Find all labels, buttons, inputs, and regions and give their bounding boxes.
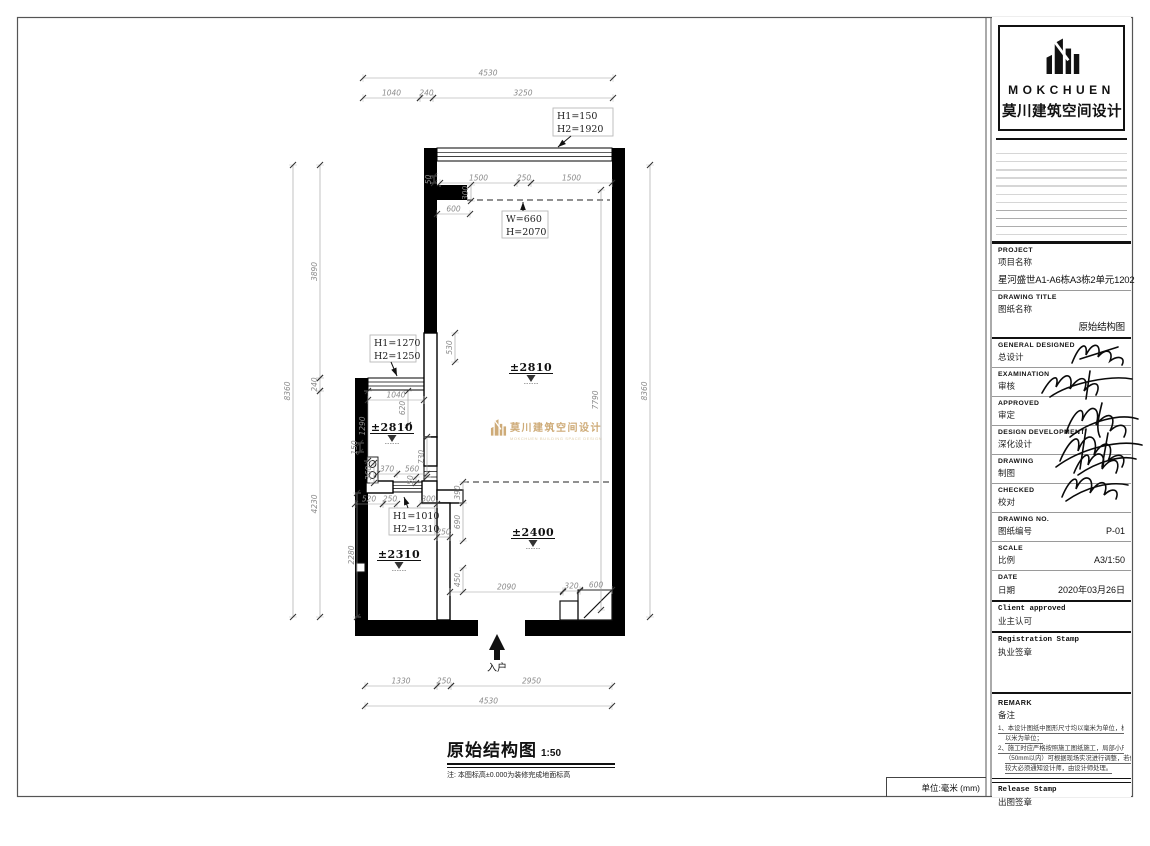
- dim-value: 3250: [513, 89, 532, 98]
- dim-value: 370: [380, 465, 395, 474]
- entry-label: 入户: [487, 661, 507, 674]
- leader-arrowhead: [391, 368, 397, 376]
- drawing-title-label-en: DRAWING TITLE: [998, 294, 1125, 301]
- floor-plan-canvas: 入户 莫川建筑空间设计 MOKCHUEN BUILDING SPACE DESI…: [0, 0, 1150, 813]
- drawing-no-value: P-01: [1106, 526, 1125, 536]
- sign-row-general-designed: GENERAL DESIGNED 总设计: [992, 339, 1131, 368]
- dim-value: 7790: [591, 390, 600, 409]
- registration-stamp-section: Registration Stamp 执业签章: [992, 633, 1131, 694]
- remark-section: REMARK 备注 1、本设计图纸中图形尺寸均以毫米为单位，标高 以米为单位； …: [992, 694, 1131, 779]
- dim-value: 390: [453, 485, 462, 500]
- opening-label-line1: W=660: [506, 214, 542, 225]
- dim-value: 8360: [640, 381, 649, 400]
- dim-value: 250: [517, 174, 532, 183]
- dim-value: 1330: [391, 677, 410, 686]
- dim-value: 1040: [382, 89, 401, 98]
- opening-label-line1: H1=150: [557, 111, 597, 122]
- opening-label-line1: H1=1270: [374, 338, 420, 349]
- elevation-value: ±2400: [512, 526, 554, 539]
- remark-note: 以米为单位；: [1005, 734, 1043, 744]
- dim-value: 560: [405, 465, 420, 474]
- dim-value: 250: [437, 677, 452, 686]
- watermark: 莫川建筑空间设计 MOKCHUEN BUILDING SPACE DESIGN: [491, 419, 602, 441]
- dim-value: 600: [446, 205, 461, 214]
- project-section: PROJECT 项目名称 星河盛世A1-A6栋A3栋2单元1202: [992, 244, 1131, 291]
- opening-label-line2: H2=1250: [374, 351, 420, 362]
- opening-label-line2: H=2070: [506, 227, 546, 238]
- divider: [996, 138, 1127, 140]
- unit-label: 单位:毫米 (mm): [886, 777, 986, 797]
- drawing-title-label-cn: 图纸名称: [998, 303, 1125, 315]
- dim-value: 8360: [283, 381, 292, 400]
- date-value: 2020年03月26日: [1058, 583, 1125, 596]
- dim-value: 530: [445, 340, 454, 355]
- footer-drawing-title: 原始结构图: [447, 741, 537, 760]
- leader-arrowhead: [520, 202, 526, 210]
- dim-value: 1500: [562, 174, 581, 183]
- dim-value: 360: [364, 466, 373, 481]
- elevation-triangle: [529, 540, 538, 547]
- elevation-value: ±2810: [510, 361, 552, 374]
- mokchuen-building-icon: [1039, 34, 1085, 74]
- dim-value: 2090: [497, 583, 516, 592]
- dim-value: 150: [350, 440, 359, 455]
- sign-row-examination: EXAMINATION 审核: [992, 368, 1131, 397]
- sign-row-approved: APPROVED 审定: [992, 397, 1131, 426]
- footer-scale: 1:50: [541, 748, 561, 759]
- dim-value: 250: [383, 495, 398, 504]
- dim-value: 3890: [310, 262, 319, 281]
- dimension-annotations: 4530104024032501500250150060010403705605…: [283, 69, 654, 711]
- watermark-cn: 莫川建筑空间设计: [509, 421, 602, 434]
- dim-value: 300: [421, 495, 436, 504]
- dim-value: 50: [406, 475, 415, 485]
- project-label-cn: 项目名称: [998, 256, 1125, 268]
- brand-name: MOKCHUEN: [1002, 83, 1121, 97]
- title-block: MOKCHUEN 莫川建筑空间设计 PROJECT 项目名称 星河盛世A1-A6…: [992, 17, 1131, 797]
- dim-value: 690: [453, 515, 462, 530]
- dim-value: 1040: [386, 391, 405, 400]
- leader-arrowhead: [404, 497, 409, 505]
- dim-value: 240: [419, 89, 434, 98]
- release-stamp-section: Release Stamp 出图签章: [992, 783, 1131, 846]
- elevation-triangle: [527, 375, 536, 382]
- company-logo: MOKCHUEN 莫川建筑空间设计: [998, 25, 1125, 131]
- entry-arrow: 入户: [487, 634, 507, 674]
- dim-value: 240: [310, 377, 319, 392]
- drawing-name-footer: 原始结构图1:50 注: 本图标高±0.000为装修完成地面标高: [447, 736, 647, 780]
- dim-value: 730: [417, 450, 426, 465]
- opening-label-line2: H2=1920: [557, 124, 603, 135]
- project-value: 星河盛世A1-A6栋A3栋2单元1202: [998, 272, 1125, 286]
- drawing-no-section: DRAWING NO. 图纸编号P-01: [992, 513, 1131, 542]
- dim-value: 1500: [469, 174, 488, 183]
- dim-value: 2950: [522, 677, 541, 686]
- scale-value: A3/1:50: [1094, 555, 1125, 565]
- elevation-triangle: [395, 562, 404, 569]
- dim-value: 320: [564, 582, 579, 591]
- title-underline: [447, 767, 615, 768]
- remark-note: 1、本设计图纸中图形尺寸均以毫米为单位，标高: [998, 724, 1124, 734]
- dim-value: 4530: [479, 697, 498, 706]
- dim-value: 4530: [478, 69, 497, 78]
- opening-label-line1: H1=1010: [393, 511, 439, 522]
- elevation-triangle: [388, 435, 397, 442]
- sign-row-checked: CHECKED 校对: [992, 484, 1131, 513]
- dim-value: 1290: [358, 416, 367, 435]
- footer-note: 注: 本图标高±0.000为装修完成地面标高: [447, 770, 647, 780]
- dim-value: 300: [461, 186, 470, 201]
- remark-note: （50mm以内）可根据现场实况进行调整，若偏差: [1005, 754, 1131, 764]
- drawing-title-section: DRAWING TITLE 图纸名称 原始结构图: [992, 291, 1131, 339]
- dim-value: 520: [362, 495, 377, 504]
- sign-row-design-development: DESIGN DEVELOPMENT 深化设计: [992, 426, 1131, 455]
- ruled-notes-area: [996, 146, 1127, 236]
- elevation-value: ±2810: [371, 421, 413, 434]
- date-section: DATE 日期2020年03月26日: [992, 571, 1131, 602]
- brand-name-cn: 莫川建筑空间设计: [1002, 100, 1121, 121]
- remark-note: 较大必须通知设计师，由设计师处理。: [1005, 764, 1112, 774]
- dim-value: 450: [453, 573, 462, 588]
- project-label-en: PROJECT: [998, 247, 1125, 254]
- drawing-sheet: { "page": { "unit_label": "单位:毫米 (mm)" }…: [0, 0, 1150, 813]
- elevation-value: ±2310: [378, 548, 420, 561]
- sign-row-drawing: DRAWING 制图: [992, 455, 1131, 484]
- title-underline: [447, 763, 615, 765]
- client-approved-section: Client approved 业主认可: [992, 602, 1131, 633]
- dim-value: 4230: [310, 494, 319, 513]
- remark-note: 2、施工时应严格按照施工图纸施工，局部小尺寸: [998, 744, 1124, 754]
- dim-value: 2280: [347, 545, 356, 564]
- watermark-en: MOKCHUEN BUILDING SPACE DESIGN: [510, 436, 602, 441]
- scale-section: SCALE 比例A3/1:50: [992, 542, 1131, 571]
- opening-label-line2: H2=1310: [393, 524, 439, 535]
- dim-value: 620: [398, 401, 407, 416]
- drawing-title-value: 原始结构图: [998, 319, 1125, 333]
- entry-step: [560, 590, 612, 620]
- dim-value: 50: [424, 175, 433, 185]
